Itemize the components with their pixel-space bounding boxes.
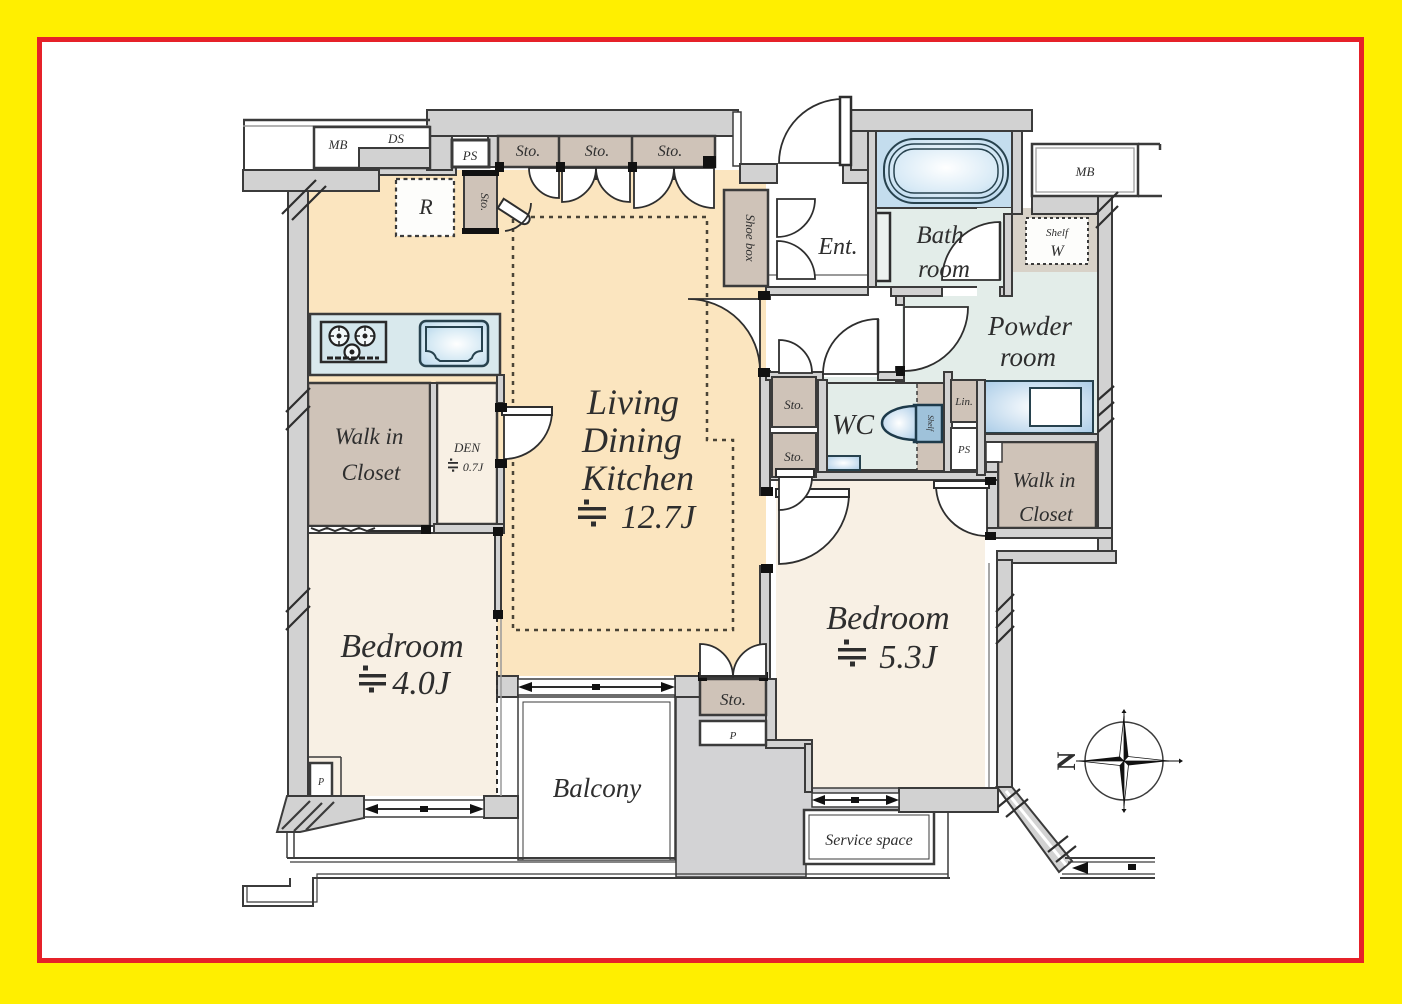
svg-text:Sto.: Sto. (784, 397, 804, 412)
svg-text:Sto.: Sto. (478, 193, 492, 211)
svg-text:Sto.: Sto. (658, 143, 682, 160)
svg-text:Powder: Powder (987, 311, 1072, 341)
svg-text:Sto.: Sto. (784, 449, 804, 464)
svg-text:Walk in: Walk in (335, 424, 404, 449)
svg-text:Shelf: Shelf (1046, 227, 1070, 239)
svg-text:Closet: Closet (1019, 502, 1074, 526)
svg-text:PS: PS (462, 148, 478, 163)
svg-text:Dining: Dining (581, 420, 682, 460)
svg-text:Ent.: Ent. (817, 234, 857, 260)
svg-text:Shelf: Shelf (926, 415, 935, 433)
svg-text:R: R (418, 194, 433, 219)
svg-text:W: W (1050, 243, 1065, 260)
svg-text:Service space: Service space (825, 832, 913, 849)
svg-text:5.3J: 5.3J (879, 639, 939, 676)
svg-text:Bedroom: Bedroom (826, 600, 949, 637)
svg-text:MB: MB (1075, 164, 1095, 179)
svg-text:4.0J: 4.0J (392, 665, 452, 702)
svg-text:Sto.: Sto. (516, 143, 540, 160)
svg-text:PS: PS (957, 444, 971, 456)
svg-text:WC: WC (832, 410, 874, 441)
svg-text:room: room (918, 256, 970, 283)
svg-text:Sto.: Sto. (585, 143, 609, 160)
svg-text:MB: MB (328, 137, 348, 152)
svg-text:DEN: DEN (453, 440, 481, 455)
svg-text:room: room (1000, 342, 1056, 372)
svg-text:N: N (1052, 751, 1081, 770)
svg-text:12.7J: 12.7J (621, 499, 698, 536)
svg-text:Shoe box: Shoe box (743, 214, 758, 262)
svg-text:Bath: Bath (916, 222, 963, 249)
svg-text:Walk in: Walk in (1013, 468, 1076, 492)
svg-text:P: P (729, 730, 737, 742)
svg-text:Kitchen: Kitchen (581, 458, 694, 498)
svg-text:0.7J: 0.7J (463, 460, 484, 474)
svg-text:Lin.: Lin. (954, 396, 972, 408)
svg-text:Closet: Closet (342, 460, 401, 485)
svg-text:Balcony: Balcony (553, 773, 641, 803)
svg-text:P: P (317, 777, 324, 788)
svg-text:Sto.: Sto. (720, 690, 746, 709)
svg-text:Living: Living (586, 382, 679, 422)
svg-text:DS: DS (387, 131, 404, 146)
svg-text:Bedroom: Bedroom (340, 628, 463, 665)
